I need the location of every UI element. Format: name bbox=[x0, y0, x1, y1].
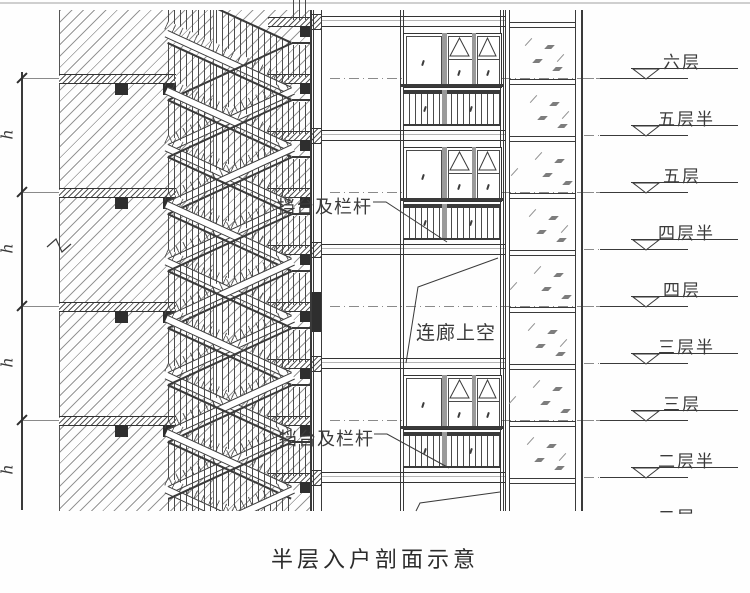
balcony-post bbox=[442, 432, 447, 468]
corridor-slab-midline bbox=[313, 134, 505, 135]
dimension-line bbox=[21, 72, 23, 510]
glass-reflection-mark bbox=[541, 287, 552, 291]
glass-reflection-mark bbox=[548, 216, 559, 220]
page-top-border bbox=[0, 2, 750, 4]
drawing-title: 半层入户剖面示意 bbox=[0, 542, 750, 574]
glass-reflection-mark bbox=[561, 225, 568, 233]
corridor-slab-line bbox=[313, 482, 505, 483]
window-mullion bbox=[442, 33, 447, 86]
transom-line bbox=[509, 27, 575, 28]
landing-handrail bbox=[292, 156, 311, 158]
level-label: 六层 bbox=[663, 48, 701, 73]
glass-reflection-mark bbox=[549, 102, 560, 106]
glass-reflection-mark bbox=[555, 352, 566, 356]
corridor-slab-line bbox=[313, 254, 505, 255]
level-line bbox=[600, 477, 688, 478]
glass-reflection-mark bbox=[557, 54, 564, 62]
glass-reflection-mark bbox=[559, 453, 566, 461]
level-label: 三层半 bbox=[658, 333, 715, 358]
glass-reflection-mark bbox=[533, 380, 540, 388]
corridor-column-solid bbox=[312, 292, 321, 332]
dimension-h-label: h bbox=[0, 129, 17, 139]
landing-handrail bbox=[292, 42, 311, 44]
balcony-post bbox=[442, 90, 447, 126]
level-line bbox=[600, 363, 688, 364]
window-pane bbox=[477, 150, 500, 174]
balcony-balusters bbox=[403, 208, 500, 238]
glass-reflection-mark bbox=[552, 67, 563, 71]
dimension-h-label: h bbox=[0, 243, 17, 253]
glass-reflection-mark bbox=[511, 168, 518, 176]
glass-reflection-mark bbox=[536, 230, 547, 234]
level-line bbox=[600, 420, 688, 421]
transom-line bbox=[509, 483, 575, 484]
corridor-slab-line bbox=[313, 244, 505, 245]
structure-line bbox=[575, 10, 576, 511]
glass-reflection-mark bbox=[562, 181, 573, 185]
dimension-h-label: h bbox=[0, 464, 17, 474]
glass-reflection-mark bbox=[530, 95, 537, 103]
landing-handrail bbox=[292, 270, 311, 272]
transom-line bbox=[509, 198, 575, 199]
transom-line bbox=[509, 141, 575, 142]
transom-line bbox=[509, 307, 575, 308]
corridor-slab-midline bbox=[313, 476, 505, 477]
transom-line bbox=[509, 136, 575, 137]
transom-line bbox=[509, 79, 575, 80]
corridor-slab-line bbox=[313, 140, 505, 141]
level-label: 五层 bbox=[663, 162, 701, 187]
glass-reflection-mark bbox=[547, 330, 558, 334]
balcony-post bbox=[442, 204, 447, 240]
level-line bbox=[600, 78, 688, 79]
glass-reflection-mark bbox=[535, 344, 546, 348]
glass-reflection-mark bbox=[540, 401, 551, 405]
window-sill bbox=[401, 426, 503, 429]
corridor-slab-line bbox=[313, 472, 505, 473]
landing-balusters bbox=[293, 216, 310, 248]
glass-reflection-mark bbox=[553, 273, 564, 277]
window-mullion bbox=[472, 147, 476, 200]
landing-balusters bbox=[293, 387, 310, 419]
glass-reflection-mark bbox=[556, 238, 567, 242]
window-pane bbox=[477, 378, 500, 402]
annotation-parapet-lower: 挡台及栏杆 bbox=[279, 425, 374, 451]
glass-reflection-mark bbox=[529, 209, 536, 217]
transom-line bbox=[509, 364, 575, 365]
glass-reflection-mark bbox=[554, 159, 565, 163]
glass-reflection-mark bbox=[534, 458, 545, 462]
landing-handrail bbox=[292, 384, 311, 386]
level-marker-partial: 二层 bbox=[658, 503, 724, 514]
level-line bbox=[600, 306, 688, 307]
landing-handrail bbox=[292, 327, 311, 329]
glass-reflection-mark bbox=[552, 387, 563, 391]
glass-reflection-mark bbox=[562, 111, 569, 119]
transom-line bbox=[509, 84, 575, 85]
glass-reflection-mark bbox=[510, 282, 517, 290]
transom-line bbox=[509, 193, 575, 194]
landing-handrail bbox=[292, 99, 311, 101]
structure-line bbox=[505, 10, 506, 511]
glass-reflection-mark bbox=[537, 116, 548, 120]
glass-reflection-mark bbox=[532, 59, 543, 63]
corridor-slab-line bbox=[313, 368, 505, 369]
level-label: 二层半 bbox=[658, 447, 715, 472]
corridor-slab-midline bbox=[313, 20, 505, 21]
window-pane bbox=[448, 150, 473, 174]
corridor-slab-line bbox=[313, 358, 505, 359]
dimension-h-label: h bbox=[0, 357, 17, 367]
window-pane bbox=[448, 36, 473, 60]
landing-balusters bbox=[293, 102, 310, 134]
glass-reflection-mark bbox=[542, 173, 553, 177]
landing-balusters bbox=[293, 330, 310, 362]
floor-centerline-margin bbox=[23, 306, 59, 307]
level-label: 四层 bbox=[663, 276, 701, 301]
corridor-slab-line bbox=[313, 26, 505, 27]
balcony-balusters bbox=[403, 436, 500, 466]
glass-reflection-mark bbox=[534, 266, 541, 274]
glass-reflection-mark bbox=[554, 466, 565, 470]
window-mullion bbox=[442, 375, 447, 428]
glass-reflection-mark bbox=[525, 38, 532, 46]
floor-centerline-margin bbox=[23, 420, 59, 421]
window-pane bbox=[448, 59, 473, 85]
corridor-slab-midline bbox=[313, 248, 505, 249]
glass-reflection-mark bbox=[561, 295, 572, 299]
level-label: 四层半 bbox=[658, 219, 715, 244]
corridor-slab-midline bbox=[313, 362, 505, 363]
glass-reflection-mark bbox=[544, 45, 555, 49]
structure-line bbox=[509, 10, 510, 511]
corridor-slab-line bbox=[313, 130, 505, 131]
window-pane bbox=[448, 401, 473, 427]
structure-line bbox=[503, 10, 504, 511]
balcony-rail-bottom bbox=[403, 238, 500, 240]
level-label: 五层半 bbox=[658, 105, 715, 130]
level-line bbox=[600, 135, 688, 136]
transom-line bbox=[509, 421, 575, 422]
transom-line bbox=[509, 312, 575, 313]
landing-balusters bbox=[293, 273, 310, 305]
transom-line bbox=[509, 478, 575, 479]
landing-balusters bbox=[293, 45, 310, 77]
structure-line bbox=[581, 10, 583, 511]
glass-reflection-mark bbox=[560, 409, 571, 413]
window-mullion bbox=[442, 147, 447, 200]
transom-line bbox=[509, 255, 575, 256]
level-line bbox=[600, 192, 688, 193]
transom-line bbox=[509, 22, 575, 23]
window-pane bbox=[448, 173, 473, 199]
staircase-area bbox=[59, 10, 311, 511]
drawing-canvas: 六层五层半五层四层半四层三层半三层二层半二层 hhhh 挡台及栏杆 挡台及栏杆 … bbox=[0, 0, 750, 593]
level-line bbox=[600, 249, 688, 250]
floor-centerline-margin bbox=[23, 192, 59, 193]
window-pane bbox=[477, 36, 500, 60]
transom-line bbox=[509, 369, 575, 370]
glass-reflection-mark bbox=[528, 323, 535, 331]
corridor-slab-line bbox=[313, 16, 505, 17]
window-sill bbox=[401, 198, 503, 201]
annotation-corridor-void: 连廊上空 bbox=[416, 318, 496, 345]
window-mullion bbox=[472, 375, 476, 428]
level-label: 三层 bbox=[663, 390, 701, 415]
balcony-rail-bottom bbox=[403, 466, 500, 468]
balcony-rail-bottom bbox=[403, 124, 500, 126]
annotation-parapet-upper: 挡台及栏杆 bbox=[277, 193, 372, 219]
window-sill bbox=[401, 84, 503, 87]
transom-line bbox=[509, 426, 575, 427]
window-mullion bbox=[472, 33, 476, 86]
level-label: 二层 bbox=[658, 503, 724, 514]
floor-centerline-margin bbox=[23, 78, 59, 79]
glass-reflection-mark bbox=[557, 124, 568, 128]
glass-reflection-mark bbox=[546, 444, 557, 448]
window-pane bbox=[448, 378, 473, 402]
glass-reflection-mark bbox=[560, 339, 567, 347]
balcony-balusters bbox=[403, 94, 500, 124]
landing-balusters bbox=[293, 159, 310, 191]
landing-balusters bbox=[293, 0, 310, 20]
glass-reflection-mark bbox=[527, 437, 534, 445]
transom-line bbox=[509, 250, 575, 251]
glass-reflection-mark bbox=[535, 152, 542, 160]
